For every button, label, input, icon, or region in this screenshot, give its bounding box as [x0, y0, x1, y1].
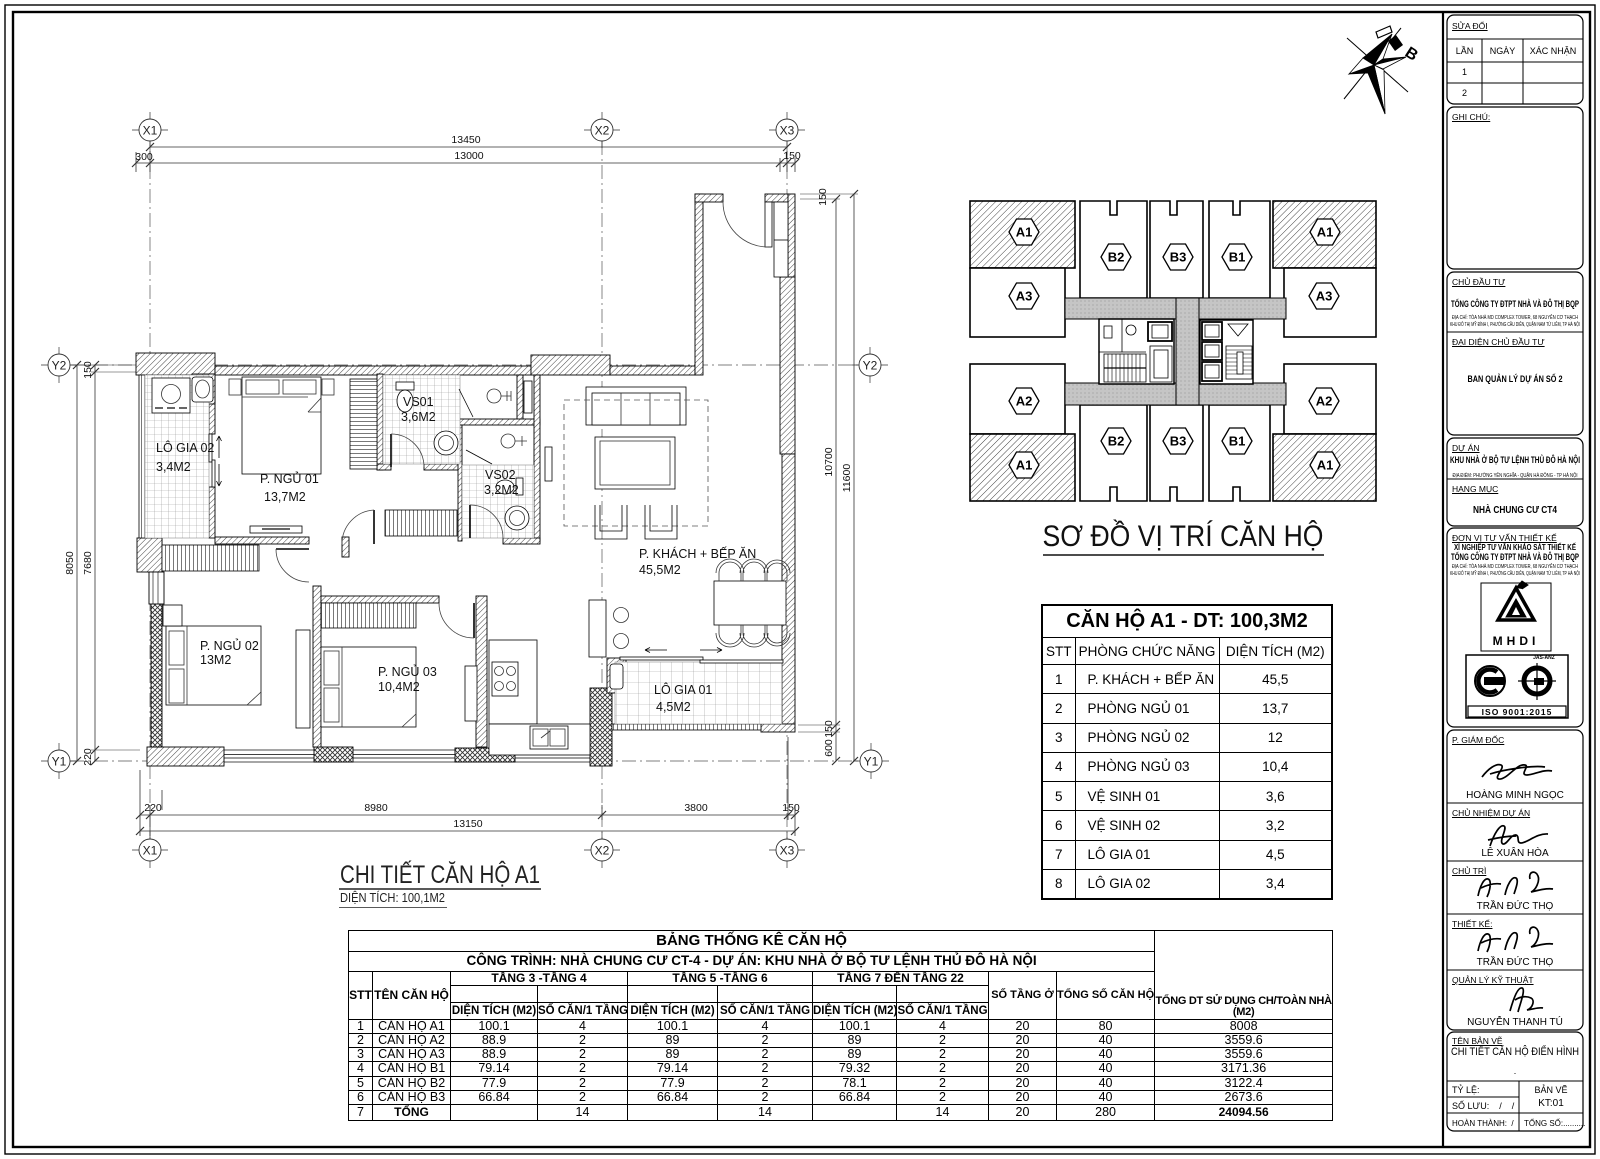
svg-text:4,5M2: 4,5M2 — [656, 700, 691, 714]
svg-text:B2: B2 — [1108, 434, 1125, 449]
svg-text:ĐỊA CHỈ: TÒA NHÀ MD COMPLEX TO: ĐỊA CHỈ: TÒA NHÀ MD COMPLEX TOWER, 68 NG… — [1452, 563, 1578, 570]
svg-text:A1: A1 — [1016, 458, 1033, 473]
svg-text:220: 220 — [82, 748, 94, 766]
svg-text:10700: 10700 — [823, 447, 835, 476]
svg-text:8980: 8980 — [364, 802, 388, 814]
svg-text:B3: B3 — [1170, 250, 1187, 265]
svg-text:A1: A1 — [1317, 225, 1334, 240]
svg-text:B2: B2 — [1108, 250, 1125, 265]
svg-text:Y2: Y2 — [52, 359, 67, 373]
svg-text:TỔNG CÔNG TY ĐTPT NHÀ VÀ ĐÔ TH: TỔNG CÔNG TY ĐTPT NHÀ VÀ ĐÔ THỊ BQP — [1451, 551, 1579, 562]
svg-text:A2: A2 — [1316, 394, 1333, 409]
svg-text:300: 300 — [135, 151, 153, 163]
svg-text:13450: 13450 — [451, 134, 480, 146]
svg-text:13,7M2: 13,7M2 — [264, 490, 306, 504]
svg-text:150: 150 — [823, 720, 835, 738]
svg-text:X1: X1 — [143, 124, 158, 138]
svg-text:A1: A1 — [1317, 458, 1334, 473]
svg-text:KHU NHÀ Ở BỘ TƯ LỆNH THỦ ĐÔ HÀ: KHU NHÀ Ở BỘ TƯ LỆNH THỦ ĐÔ HÀ NỘI — [1450, 454, 1580, 466]
svg-text:3,4M2: 3,4M2 — [156, 460, 191, 474]
svg-text:ĐỊA ĐIỂM: PHƯỜNG YÊN NGHĨA - Q: ĐỊA ĐIỂM: PHƯỜNG YÊN NGHĨA - QUẬN HÀ ĐÔN… — [1453, 471, 1578, 479]
svg-text:X1: X1 — [143, 844, 158, 858]
svg-text:VS02: VS02 — [485, 468, 516, 482]
svg-text:150: 150 — [783, 150, 801, 162]
svg-text:X3: X3 — [780, 124, 795, 138]
svg-text:150: 150 — [817, 188, 829, 206]
svg-text:10,4M2: 10,4M2 — [378, 680, 420, 694]
svg-text:13000: 13000 — [454, 150, 483, 162]
svg-text:P. NGỦ 02: P. NGỦ 02 — [200, 638, 259, 653]
svg-text:DIỆN TÍCH: 100,1M2: DIỆN TÍCH: 100,1M2 — [340, 890, 445, 905]
svg-text:P. KHÁCH + BẾP ĂN: P. KHÁCH + BẾP ĂN — [639, 546, 756, 561]
svg-text:45,5M2: 45,5M2 — [639, 563, 681, 577]
svg-text:600: 600 — [823, 739, 835, 757]
svg-text:13150: 13150 — [453, 818, 482, 830]
svg-text:A3: A3 — [1016, 289, 1033, 304]
svg-text:KHU ĐÔ THỊ MỸ ĐÌNH I, PHƯỜNG C: KHU ĐÔ THỊ MỸ ĐÌNH I, PHƯỜNG CẦU DIỄN, Q… — [1450, 569, 1580, 577]
svg-text:P. NGỦ 01: P. NGỦ 01 — [260, 471, 319, 486]
svg-text:CHI TIẾT CĂN HỘ ĐIỂN HÌNH: CHI TIẾT CĂN HỘ ĐIỂN HÌNH — [1451, 1045, 1579, 1058]
svg-text:150: 150 — [82, 361, 94, 379]
svg-text:BAN QUẢN LÝ DỰ ÁN SỐ 2: BAN QUẢN LÝ DỰ ÁN SỐ 2 — [1468, 373, 1563, 385]
svg-text:ĐỊA CHỈ: TÒA NHÀ MD COMPLEX TO: ĐỊA CHỈ: TÒA NHÀ MD COMPLEX TOWER, 68 NG… — [1452, 314, 1578, 321]
svg-text:7680: 7680 — [82, 551, 94, 575]
svg-text:X2: X2 — [595, 124, 610, 138]
svg-text:A3: A3 — [1316, 289, 1333, 304]
svg-text:Y1: Y1 — [864, 755, 879, 769]
svg-text:KHU ĐÔ THỊ MỸ ĐÌNH I, PHƯỜNG C: KHU ĐÔ THỊ MỸ ĐÌNH I, PHƯỜNG CẦU DIỄN, Q… — [1450, 320, 1580, 328]
svg-text:CHI TIẾT CĂN HỘ A1: CHI TIẾT CĂN HỘ A1 — [340, 860, 540, 889]
svg-text:TỔNG CÔNG TY ĐTPT NHÀ VÀ ĐÔ TH: TỔNG CÔNG TY ĐTPT NHÀ VÀ ĐÔ THỊ BQP — [1451, 298, 1579, 309]
svg-text:3,2M2: 3,2M2 — [484, 483, 519, 497]
svg-text:220: 220 — [144, 802, 162, 814]
svg-text:X2: X2 — [595, 844, 610, 858]
svg-text:8050: 8050 — [64, 551, 76, 575]
svg-text:13M2: 13M2 — [200, 653, 231, 667]
svg-text:A2: A2 — [1016, 394, 1033, 409]
svg-text:11600: 11600 — [841, 464, 853, 493]
svg-text:Y1: Y1 — [52, 755, 67, 769]
svg-text:Y2: Y2 — [863, 359, 878, 373]
svg-text:B: B — [1402, 44, 1421, 65]
svg-text:B1: B1 — [1229, 250, 1246, 265]
svg-text:LÔ GIA 01: LÔ GIA 01 — [654, 682, 712, 697]
svg-text:B1: B1 — [1229, 434, 1246, 449]
svg-text:3800: 3800 — [684, 802, 708, 814]
svg-text:A1: A1 — [1016, 225, 1033, 240]
svg-text:VS01: VS01 — [403, 395, 434, 409]
svg-text:3,6M2: 3,6M2 — [401, 410, 436, 424]
svg-text:B3: B3 — [1170, 434, 1187, 449]
svg-text:LÔ GIA 02: LÔ GIA 02 — [156, 440, 214, 455]
svg-text:150: 150 — [782, 802, 800, 814]
svg-text:X3: X3 — [780, 844, 795, 858]
svg-text:SƠ ĐỒ VỊ TRÍ CĂN HỘ: SƠ ĐỒ VỊ TRÍ CĂN HỘ — [1043, 519, 1324, 553]
svg-text:P. NGỦ 03: P. NGỦ 03 — [378, 664, 437, 679]
svg-text:NHÀ CHUNG CƯ CT4: NHÀ CHUNG CƯ CT4 — [1473, 503, 1557, 516]
